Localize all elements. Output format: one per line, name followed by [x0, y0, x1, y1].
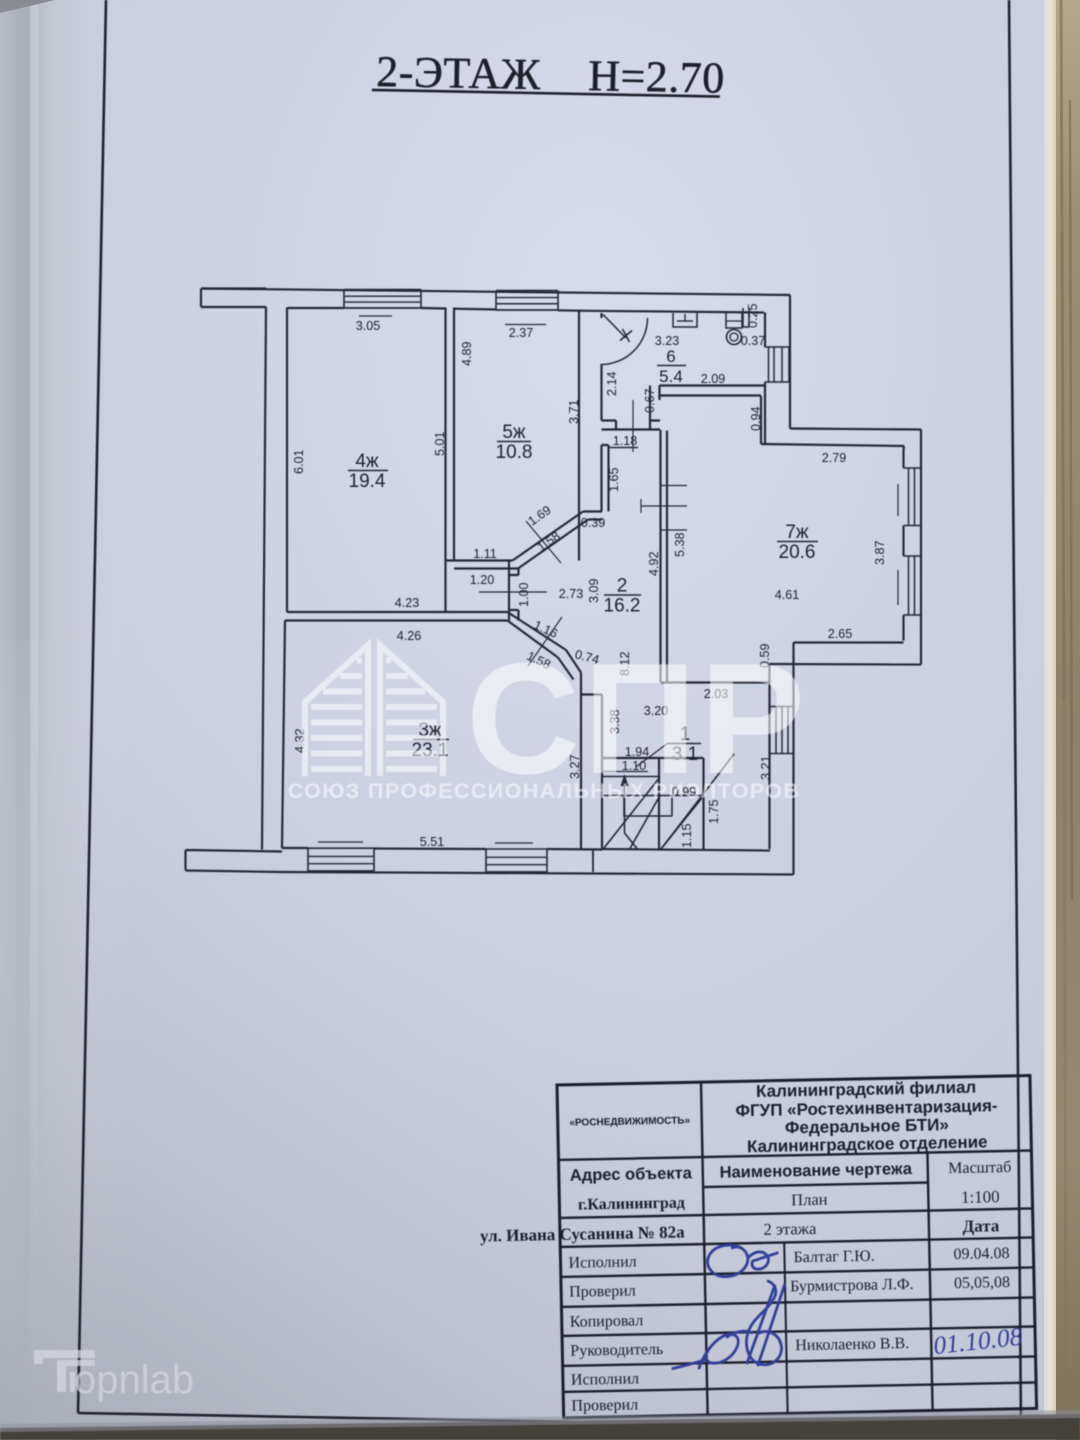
- svg-text:2.37: 2.37: [509, 326, 534, 340]
- svg-text:1.69: 1.69: [526, 503, 554, 529]
- svg-text:2.14: 2.14: [605, 371, 619, 396]
- svg-text:1.15: 1.15: [680, 823, 694, 848]
- svg-text:4.23: 4.23: [395, 596, 420, 610]
- svg-text:5.4: 5.4: [659, 367, 683, 386]
- svg-text:7ж: 7ж: [785, 522, 809, 543]
- svg-text:1.18: 1.18: [613, 434, 638, 448]
- svg-text:«РОСНЕДВИЖИМОСТЬ»: «РОСНЕДВИЖИМОСТЬ»: [569, 1115, 690, 1128]
- svg-text:4ж: 4ж: [355, 451, 379, 472]
- svg-text:2.65: 2.65: [828, 627, 853, 641]
- svg-text:Бурмистрова Л.Ф.: Бурмистрова Л.Ф.: [790, 1276, 914, 1295]
- svg-text:opnlab: opnlab: [74, 1358, 194, 1402]
- svg-text:0.37: 0.37: [741, 334, 766, 348]
- svg-text:2 этажа: 2 этажа: [763, 1219, 817, 1239]
- svg-text:1.65: 1.65: [607, 467, 621, 492]
- svg-text:3.71: 3.71: [567, 399, 581, 424]
- svg-text:3.09: 3.09: [587, 578, 601, 603]
- svg-text:Наименование чертежа: Наименование чертежа: [719, 1160, 913, 1182]
- svg-text:ул. Ивана Сусанина № 82а: ул. Ивана Сусанина № 82а: [480, 1222, 685, 1245]
- svg-text:Проверил: Проверил: [569, 1282, 636, 1300]
- svg-text:6: 6: [666, 347, 675, 366]
- svg-text:Дата: Дата: [962, 1216, 1000, 1236]
- svg-text:2.09: 2.09: [701, 372, 726, 386]
- svg-text:05,05,08: 05,05,08: [954, 1274, 1010, 1292]
- svg-text:2: 2: [617, 576, 628, 597]
- svg-text:5ж: 5ж: [502, 422, 526, 443]
- svg-text:2.79: 2.79: [822, 451, 847, 465]
- svg-text:1.00: 1.00: [517, 582, 531, 607]
- svg-text:1.11: 1.11: [473, 547, 497, 561]
- svg-text:6.01: 6.01: [292, 449, 306, 474]
- svg-text:Исполнил: Исполнил: [571, 1370, 639, 1388]
- svg-text:г.Калининград: г.Калининград: [578, 1194, 685, 1213]
- svg-text:1.58: 1.58: [535, 529, 563, 555]
- svg-text:Николаенко В.В.: Николаенко В.В.: [795, 1335, 909, 1354]
- svg-text:Балтаг Г.Ю.: Балтаг Г.Ю.: [793, 1248, 874, 1267]
- svg-text:09.04.08: 09.04.08: [953, 1245, 1009, 1263]
- svg-text:СОЮЗ ПРОФЕССИОНАЛЬНЫХ РИЭЛТОРО: СОЮЗ ПРОФЕССИОНАЛЬНЫХ РИЭЛТОРОВ: [288, 779, 801, 803]
- svg-text:5.01: 5.01: [433, 431, 447, 456]
- svg-text:2.73: 2.73: [559, 587, 584, 601]
- svg-text:20.6: 20.6: [779, 542, 816, 563]
- svg-text:Масштаб: Масштаб: [948, 1159, 1012, 1177]
- svg-text:1.20: 1.20: [470, 573, 495, 587]
- svg-text:1:100: 1:100: [961, 1187, 1000, 1207]
- svg-text:5.51: 5.51: [420, 835, 445, 849]
- svg-text:Копировал: Копировал: [570, 1312, 644, 1330]
- svg-text:10.8: 10.8: [496, 442, 533, 463]
- svg-text:4.26: 4.26: [397, 629, 422, 643]
- svg-text:Руководитель: Руководитель: [570, 1341, 663, 1360]
- svg-text:0.94: 0.94: [749, 406, 763, 431]
- svg-text:4.92: 4.92: [647, 551, 661, 576]
- svg-text:16.2: 16.2: [604, 596, 641, 617]
- svg-text:0.25: 0.25: [746, 303, 760, 328]
- svg-text:3.87: 3.87: [873, 540, 887, 565]
- svg-text:5.38: 5.38: [673, 532, 687, 557]
- svg-text:0.67: 0.67: [643, 388, 657, 413]
- svg-text:19.4: 19.4: [349, 471, 386, 492]
- svg-text:Исполнил: Исполнил: [568, 1253, 636, 1271]
- svg-text:3.23: 3.23: [655, 334, 680, 348]
- svg-text:Адрес объекта: Адрес объекта: [570, 1164, 693, 1184]
- svg-text:План: План: [791, 1190, 828, 1210]
- svg-text:Проверил: Проверил: [571, 1396, 638, 1414]
- svg-text:4.61: 4.61: [775, 588, 800, 602]
- svg-text:4.89: 4.89: [460, 341, 474, 366]
- svg-text:3.05: 3.05: [356, 319, 381, 333]
- svg-text:0.39: 0.39: [581, 516, 606, 530]
